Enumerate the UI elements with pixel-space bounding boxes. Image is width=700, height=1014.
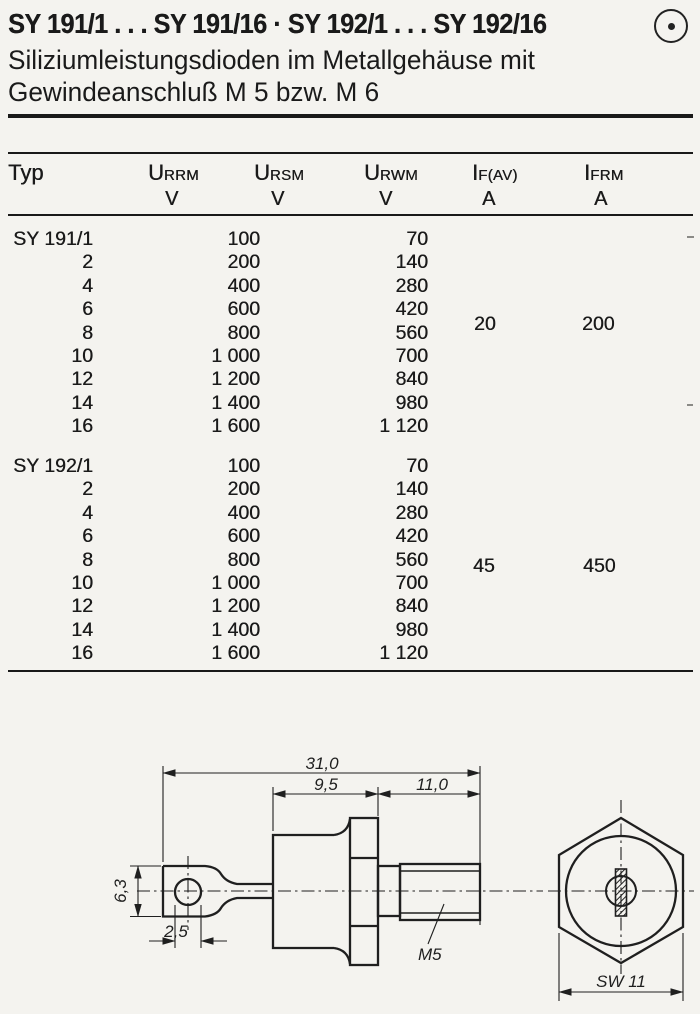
scan-speck — [687, 236, 694, 238]
cell-urwm: 140 — [308, 478, 428, 501]
cell-typ: 6 — [8, 298, 93, 321]
cell-urrm: 800 — [140, 549, 260, 572]
cell-urwm: 980 — [308, 619, 428, 642]
dim-stud-length: 11,0 — [416, 775, 448, 794]
page-subtitle: Siliziumleistungsdioden im Metallgehäuse… — [8, 44, 535, 108]
cell-urwm: 140 — [308, 251, 428, 274]
cell-urwm: 420 — [308, 298, 428, 321]
table-row: 14 1 400 980 — [0, 619, 700, 642]
cell-urrm: 600 — [140, 298, 260, 321]
sy191-ifav-value: 20 — [474, 313, 496, 336]
dim-case-length: 9,5 — [314, 775, 338, 794]
cell-urrm: 800 — [140, 322, 260, 345]
cell-urrm: 1 400 — [140, 392, 260, 415]
table-row: 10 1 000 700 — [0, 345, 700, 368]
table-row: 4 400 280 — [0, 502, 700, 525]
table-top-rule — [8, 152, 693, 154]
cell-typ: 6 — [8, 525, 93, 548]
col-header-ifav: IF(AV) A — [472, 161, 518, 210]
table-row: SY 192/1 100 70 — [0, 455, 700, 478]
cell-typ: 12 — [8, 595, 93, 618]
cell-urrm: 100 — [140, 455, 260, 478]
cell-urrm: 1 200 — [140, 368, 260, 391]
dim-overall-length: 31,0 — [305, 754, 339, 773]
cell-typ: 10 — [8, 572, 93, 595]
table-row: 4 400 280 — [0, 275, 700, 298]
dimension-lines — [130, 766, 683, 1001]
datasheet-page: SY 191/1 . . . SY 191/16 · SY 192/1 . . … — [0, 0, 700, 1014]
col-header-urwm: URWM V — [364, 161, 418, 210]
cell-typ: 10 — [8, 345, 93, 368]
dim-wrench-size: SW 11 — [596, 972, 646, 991]
cell-urrm: 400 — [140, 502, 260, 525]
cell-urrm: 1 400 — [140, 619, 260, 642]
cell-typ: SY 191/1 — [8, 228, 93, 251]
cell-urwm: 840 — [308, 368, 428, 391]
cell-typ: 12 — [8, 368, 93, 391]
cell-urwm: 280 — [308, 502, 428, 525]
cell-typ: SY 192/1 — [8, 455, 93, 478]
cell-urwm: 1 120 — [308, 642, 428, 665]
cell-urrm: 1 600 — [140, 642, 260, 665]
dim-hole-diameter: 2,5 — [163, 922, 188, 941]
cell-urrm: 1 000 — [140, 345, 260, 368]
cell-typ: 4 — [8, 275, 93, 298]
cell-urwm: 560 — [308, 322, 428, 345]
col-header-urrm: URRM V — [148, 161, 199, 210]
cell-urwm: 70 — [308, 455, 428, 478]
cell-urrm: 200 — [140, 251, 260, 274]
cell-urrm: 400 — [140, 275, 260, 298]
table-header-rule — [8, 214, 693, 216]
subtitle-line-2: Gewindeanschluß M 5 bzw. M 6 — [8, 77, 379, 107]
cell-urwm: 420 — [308, 525, 428, 548]
table-row: 14 1 400 980 — [0, 392, 700, 415]
cell-urrm: 200 — [140, 478, 260, 501]
table-row: 16 1 600 1 120 — [0, 415, 700, 438]
table-row: 12 1 200 840 — [0, 595, 700, 618]
cell-typ: 8 — [8, 322, 93, 345]
table-row: 12 1 200 840 — [0, 368, 700, 391]
cell-urwm: 70 — [308, 228, 428, 251]
sy191-ifrm-value: 200 — [582, 313, 615, 336]
dim-lug-width: 6,3 — [111, 879, 130, 903]
cell-urwm: 1 120 — [308, 415, 428, 438]
title-divider — [8, 114, 693, 118]
cell-urwm: 560 — [308, 549, 428, 572]
threaded-stud — [400, 864, 480, 920]
scan-speck — [687, 404, 693, 406]
center-lines — [137, 800, 694, 974]
cell-typ: 2 — [8, 251, 93, 274]
cell-urrm: 1 600 — [140, 415, 260, 438]
table-row: 6 600 420 — [0, 525, 700, 548]
circled-dot-icon — [654, 9, 688, 43]
table-bottom-rule — [8, 670, 693, 672]
table-row: SY 191/1 100 70 — [0, 228, 700, 251]
cell-urwm: 840 — [308, 595, 428, 618]
cell-urrm: 100 — [140, 228, 260, 251]
cell-typ: 14 — [8, 392, 93, 415]
cell-urrm: 1 000 — [140, 572, 260, 595]
subtitle-line-1: Siliziumleistungsdioden im Metallgehäuse… — [8, 45, 535, 75]
cell-urwm: 980 — [308, 392, 428, 415]
sy192-ifrm-value: 450 — [583, 555, 616, 578]
cell-typ: 14 — [8, 619, 93, 642]
col-header-ursm: URSM V — [254, 161, 304, 210]
label-thread: M5 — [418, 945, 442, 964]
sy192-ifav-value: 45 — [473, 555, 495, 578]
table-row: 16 1 600 1 120 — [0, 642, 700, 665]
cell-urrm: 600 — [140, 525, 260, 548]
cell-typ: 4 — [8, 502, 93, 525]
table-row: 2 200 140 — [0, 478, 700, 501]
page-title: SY 191/1 . . . SY 191/16 · SY 192/1 . . … — [8, 8, 546, 40]
cell-urrm: 1 200 — [140, 595, 260, 618]
cell-typ: 16 — [8, 642, 93, 665]
cell-urwm: 700 — [308, 572, 428, 595]
table-row: 2 200 140 — [0, 251, 700, 274]
cell-typ: 16 — [8, 415, 93, 438]
cell-typ: 2 — [8, 478, 93, 501]
cell-typ: 8 — [8, 549, 93, 572]
package-outline-drawing: 31,0 9,5 11,0 6,3 2,5 M5 SW 11 — [0, 740, 700, 1014]
cell-urwm: 700 — [308, 345, 428, 368]
lead-tab-hatched — [616, 869, 627, 916]
col-header-ifrm: IFRM A — [584, 161, 624, 210]
cell-urwm: 280 — [308, 275, 428, 298]
col-header-typ: Typ — [8, 161, 43, 185]
